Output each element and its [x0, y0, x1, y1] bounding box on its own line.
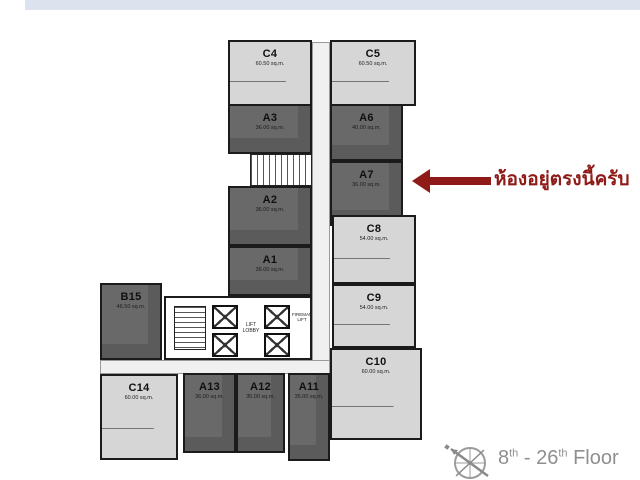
annotation-text: ห้องอยู่ตรงนี้ครับ — [494, 164, 630, 194]
arrow-icon — [412, 169, 430, 193]
unit-area: 36.00 sq.m. — [256, 126, 285, 132]
lift-shaft — [264, 333, 290, 357]
lift-shaft — [212, 305, 238, 329]
unit-c10: C10 60.00 sq.m. — [330, 348, 422, 440]
unit-c9: C9 54.00 sq.m. — [332, 284, 416, 348]
unit-area: 36.00 sq.m. — [352, 183, 381, 189]
unit-label: C5 — [366, 49, 381, 60]
unit-area: 60.00 sq.m. — [362, 370, 391, 376]
unit-label: B15 — [120, 292, 141, 303]
unit-a11: A11 35.00 sq.m. — [288, 373, 330, 461]
unit-area: 36.00 sq.m. — [195, 395, 224, 401]
unit-a2: A2 36.00 sq.m. — [228, 186, 312, 246]
unit-label: A11 — [299, 382, 319, 393]
unit-area: 60.50 sq.m. — [256, 62, 285, 68]
unit-pointer — [412, 168, 492, 194]
unit-a12: A12 35.00 sq.m. — [236, 373, 285, 453]
stairwell-upper — [250, 154, 312, 186]
stairwell-core — [174, 306, 206, 350]
unit-area: 54.00 sq.m. — [360, 306, 389, 312]
unit-label: C14 — [128, 383, 149, 394]
floor-separator: - — [518, 447, 536, 469]
fireman-lift-label: FIREMAN LIFT — [292, 312, 312, 323]
unit-label: A13 — [199, 382, 220, 393]
unit-area: 46.50 sq.m. — [117, 305, 146, 311]
unit-label: A3 — [263, 113, 278, 124]
corridor-horizontal — [100, 360, 330, 374]
unit-area: 35.00 sq.m. — [295, 395, 324, 401]
unit-area: 60.00 sq.m. — [125, 396, 154, 402]
unit-area: 40.00 sq.m. — [352, 126, 381, 132]
unit-a1: A1 36.00 sq.m. — [228, 246, 312, 296]
floor-from: 8 — [498, 447, 509, 469]
compass-icon — [442, 436, 494, 480]
lift-lobby-label: LIFT LOBBY — [240, 322, 262, 334]
unit-label: A7 — [359, 170, 374, 181]
unit-a6: A6 40.00 sq.m. — [330, 104, 403, 161]
unit-a13: A13 36.00 sq.m. — [183, 373, 236, 453]
unit-area: 36.00 sq.m. — [256, 268, 285, 274]
floor-to: 26 — [536, 447, 558, 469]
floor-to-sup: th — [558, 447, 567, 459]
unit-area: 35.00 sq.m. — [246, 395, 275, 401]
floor-plan: C4 60.50 sq.m. C5 60.50 sq.m. A3 36.00 s… — [0, 0, 640, 480]
unit-label: A6 — [359, 113, 374, 124]
floor-from-sup: th — [509, 447, 518, 459]
corridor-vertical — [312, 42, 330, 372]
unit-area: 36.00 sq.m. — [256, 208, 285, 214]
unit-b15: B15 46.50 sq.m. — [100, 283, 162, 360]
unit-label: A1 — [263, 255, 278, 266]
unit-c5: C5 60.50 sq.m. — [330, 40, 416, 106]
lift-shaft — [212, 333, 238, 357]
unit-label: C8 — [367, 224, 382, 235]
unit-label: A2 — [263, 195, 278, 206]
unit-c14: C14 60.00 sq.m. — [100, 374, 178, 460]
screenshot-root: C4 60.50 sq.m. C5 60.50 sq.m. A3 36.00 s… — [0, 0, 640, 480]
unit-label: C10 — [365, 357, 386, 368]
unit-area: 54.00 sq.m. — [360, 237, 389, 243]
arrow-shaft — [429, 177, 491, 185]
unit-a3: A3 36.00 sq.m. — [228, 104, 312, 154]
lift-core: LIFT LOBBY FIREMAN LIFT — [164, 296, 312, 360]
lift-shaft — [264, 305, 290, 329]
unit-label: A12 — [250, 382, 271, 393]
unit-c8: C8 54.00 sq.m. — [332, 215, 416, 284]
floor-range-label: 8th - 26th Floor — [498, 447, 619, 470]
unit-c4: C4 60.50 sq.m. — [228, 40, 312, 106]
unit-label: C9 — [367, 293, 382, 304]
floor-word: Floor — [568, 447, 619, 469]
unit-label: C4 — [263, 49, 278, 60]
unit-area: 60.50 sq.m. — [359, 62, 388, 68]
